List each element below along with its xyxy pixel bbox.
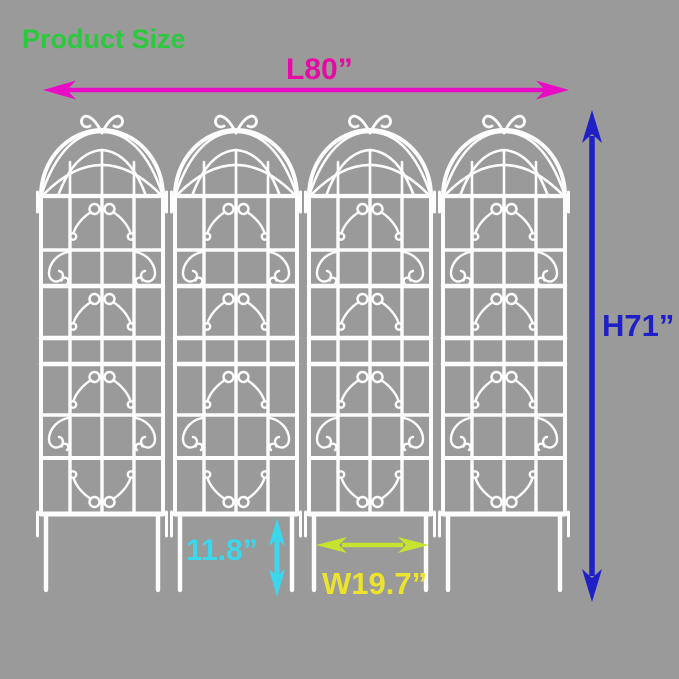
page-title: Product Size [22,24,186,54]
panel-width-label: W19.7” [322,566,427,601]
panel-width-dimension: W19.7” [316,537,429,601]
height-label: H71” [602,308,674,343]
diagram-canvas: Product Size L80” H71” 11.8” W19. [0,0,679,679]
leg-height-label: 11.8” [186,534,258,567]
length-label: L80” [286,53,353,86]
product-size-diagram: Product Size L80” H71” 11.8” W19. [0,0,679,679]
